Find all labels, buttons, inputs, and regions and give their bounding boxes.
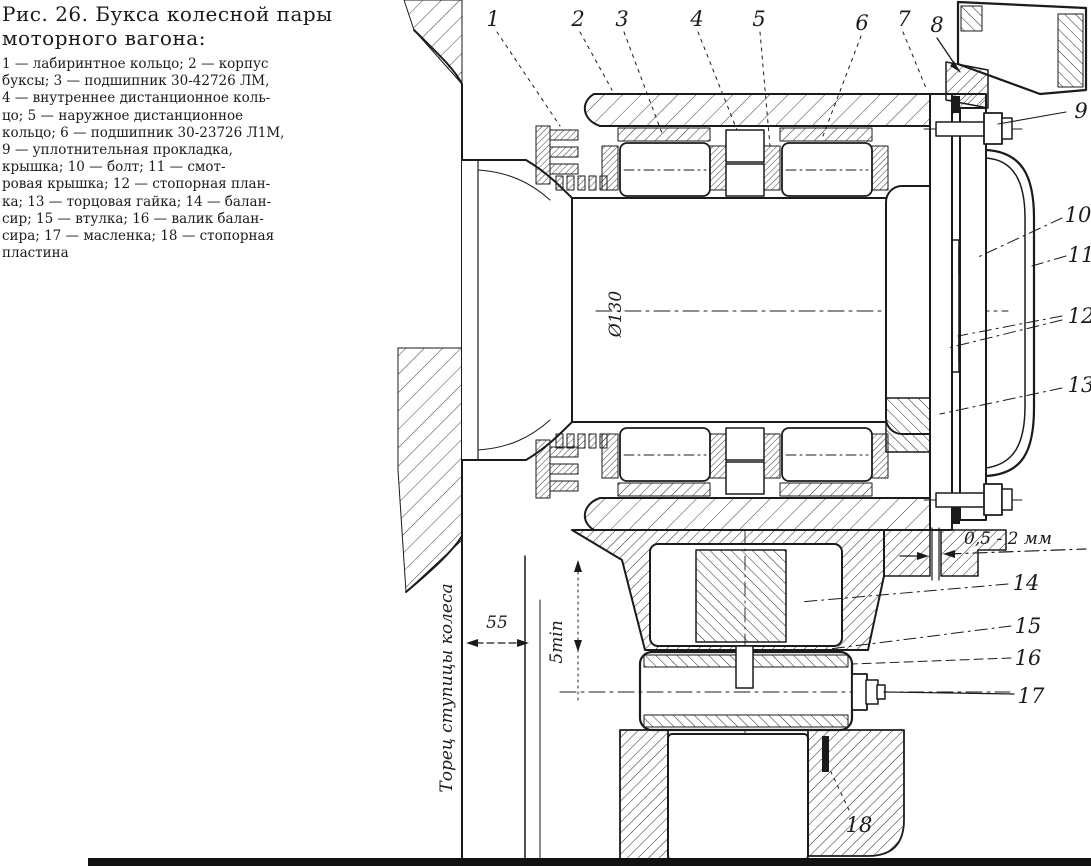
gasket-seam-bottom bbox=[952, 507, 960, 524]
roller-bearing-top-right bbox=[764, 128, 888, 196]
roller-bearing-top-left bbox=[602, 128, 726, 196]
figure-caption: Рис. 26. Букса колесной пары моторного в… bbox=[2, 2, 332, 262]
callout-13: 13 bbox=[1068, 373, 1091, 397]
callout-16: 16 bbox=[1015, 646, 1042, 670]
housing-end-wall bbox=[930, 94, 952, 530]
callout-7: 7 bbox=[897, 7, 911, 31]
housing-bottom-band bbox=[585, 498, 930, 530]
callout-6: 6 bbox=[855, 11, 868, 35]
callout-1: 1 bbox=[486, 7, 499, 31]
figure-title-line2: моторного вагона: bbox=[2, 26, 332, 50]
housing-top-band bbox=[585, 94, 986, 126]
callout-2: 2 bbox=[570, 7, 584, 31]
caption-line: пластина bbox=[2, 245, 332, 262]
callout-8: 8 bbox=[930, 13, 943, 37]
inspection-cover-inner bbox=[986, 158, 1025, 468]
inspection-cover-outer bbox=[986, 150, 1034, 476]
top-bracket bbox=[946, 2, 1086, 108]
distance-rings-top bbox=[726, 130, 764, 196]
stop-strip bbox=[822, 736, 829, 772]
gap-label: 0,5 - 2 мм bbox=[964, 529, 1052, 549]
upper-bearing-section bbox=[536, 94, 986, 196]
callout-12: 12 bbox=[1068, 304, 1091, 328]
balancer-lower-fork bbox=[620, 730, 904, 860]
caption-line: 9 — уплотнительная прокладка, bbox=[2, 142, 332, 159]
caption-line: ровая крышка; 12 — стопорная план- bbox=[2, 176, 332, 193]
callout-3: 3 bbox=[615, 7, 628, 31]
caption-line: сира; 17 — масленка; 18 — стопорная bbox=[2, 228, 332, 245]
callout-14: 14 bbox=[1013, 571, 1040, 595]
fastening-cover bbox=[960, 108, 986, 520]
bushing-and-pin bbox=[560, 646, 1010, 730]
callout-10: 10 bbox=[1065, 203, 1091, 227]
lower-bearing-section bbox=[536, 428, 930, 530]
caption-line: цо; 5 — наружное дистанционное bbox=[2, 108, 332, 125]
bracket-boss bbox=[946, 62, 988, 108]
callout-4: 4 bbox=[689, 7, 703, 31]
scanned-figure-page: Рис. 26. Букса колесной пары моторного в… bbox=[0, 0, 1091, 866]
caption-line: 4 — внутреннее дистанционное коль- bbox=[2, 90, 332, 107]
figure-caption-lines: 1 — лабиринтное кольцо; 2 — корпус буксы… bbox=[2, 56, 332, 262]
callout-9: 9 bbox=[1074, 99, 1087, 123]
grease-fitting bbox=[852, 674, 885, 710]
callout-17: 17 bbox=[1018, 684, 1045, 708]
pin-key bbox=[736, 646, 753, 688]
scan-edge-bar bbox=[88, 858, 1091, 866]
hub-offset-label: 55 bbox=[486, 613, 508, 633]
balancer-head bbox=[696, 550, 786, 642]
callout-11: 11 bbox=[1068, 243, 1091, 267]
caption-line: сир; 15 — втулка; 16 — валик балан- bbox=[2, 211, 332, 228]
bushing-bottom bbox=[644, 715, 848, 727]
distance-rings-bottom bbox=[726, 428, 764, 494]
hub-face-label: Торец ступицы колеса bbox=[437, 583, 457, 792]
callout-18: 18 bbox=[846, 813, 873, 837]
caption-line: крышка; 10 — болт; 11 — смот- bbox=[2, 159, 332, 176]
labyrinth-ring-top bbox=[536, 126, 607, 190]
callout-15: 15 bbox=[1015, 614, 1042, 638]
min-clearance-dimension: 5min bbox=[547, 560, 582, 700]
callout-5: 5 bbox=[752, 7, 765, 31]
front-cover-assembly bbox=[924, 94, 1034, 530]
min-clearance-label: 5min bbox=[547, 620, 567, 663]
diameter-label: Ø130 bbox=[606, 291, 626, 339]
hub-offset-dimension: 55 bbox=[466, 613, 529, 647]
figure-title-line1: Рис. 26. Букса колесной пары bbox=[2, 2, 332, 26]
roller-bearing-bottom-left bbox=[602, 428, 726, 496]
caption-line: ка; 13 — торцовая гайка; 14 — балан- bbox=[2, 194, 332, 211]
balancer bbox=[560, 530, 1010, 860]
caption-line: буксы; 3 — подшипник 30-42726 ЛМ, bbox=[2, 73, 332, 90]
caption-line: 1 — лабиринтное кольцо; 2 — корпус bbox=[2, 56, 332, 73]
caption-line: кольцо; 6 — подшипник 30-23726 Л1М, bbox=[2, 125, 332, 142]
roller-bearing-bottom-right bbox=[764, 428, 888, 496]
labyrinth-ring-bottom bbox=[536, 434, 607, 498]
